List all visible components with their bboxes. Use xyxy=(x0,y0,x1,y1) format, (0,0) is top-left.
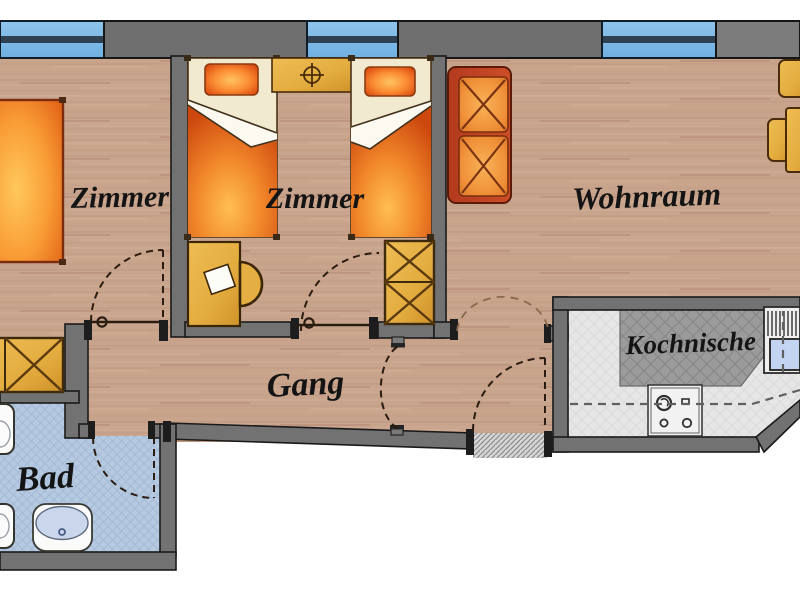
svg-text:Gang: Gang xyxy=(266,364,345,405)
svg-text:Kochnische: Kochnische xyxy=(624,326,757,361)
svg-text:Wohnraum: Wohnraum xyxy=(572,175,722,216)
svg-text:Bad: Bad xyxy=(14,456,76,499)
svg-text:Zimmer: Zimmer xyxy=(265,182,365,215)
svg-text:Zimmer: Zimmer xyxy=(69,180,169,215)
